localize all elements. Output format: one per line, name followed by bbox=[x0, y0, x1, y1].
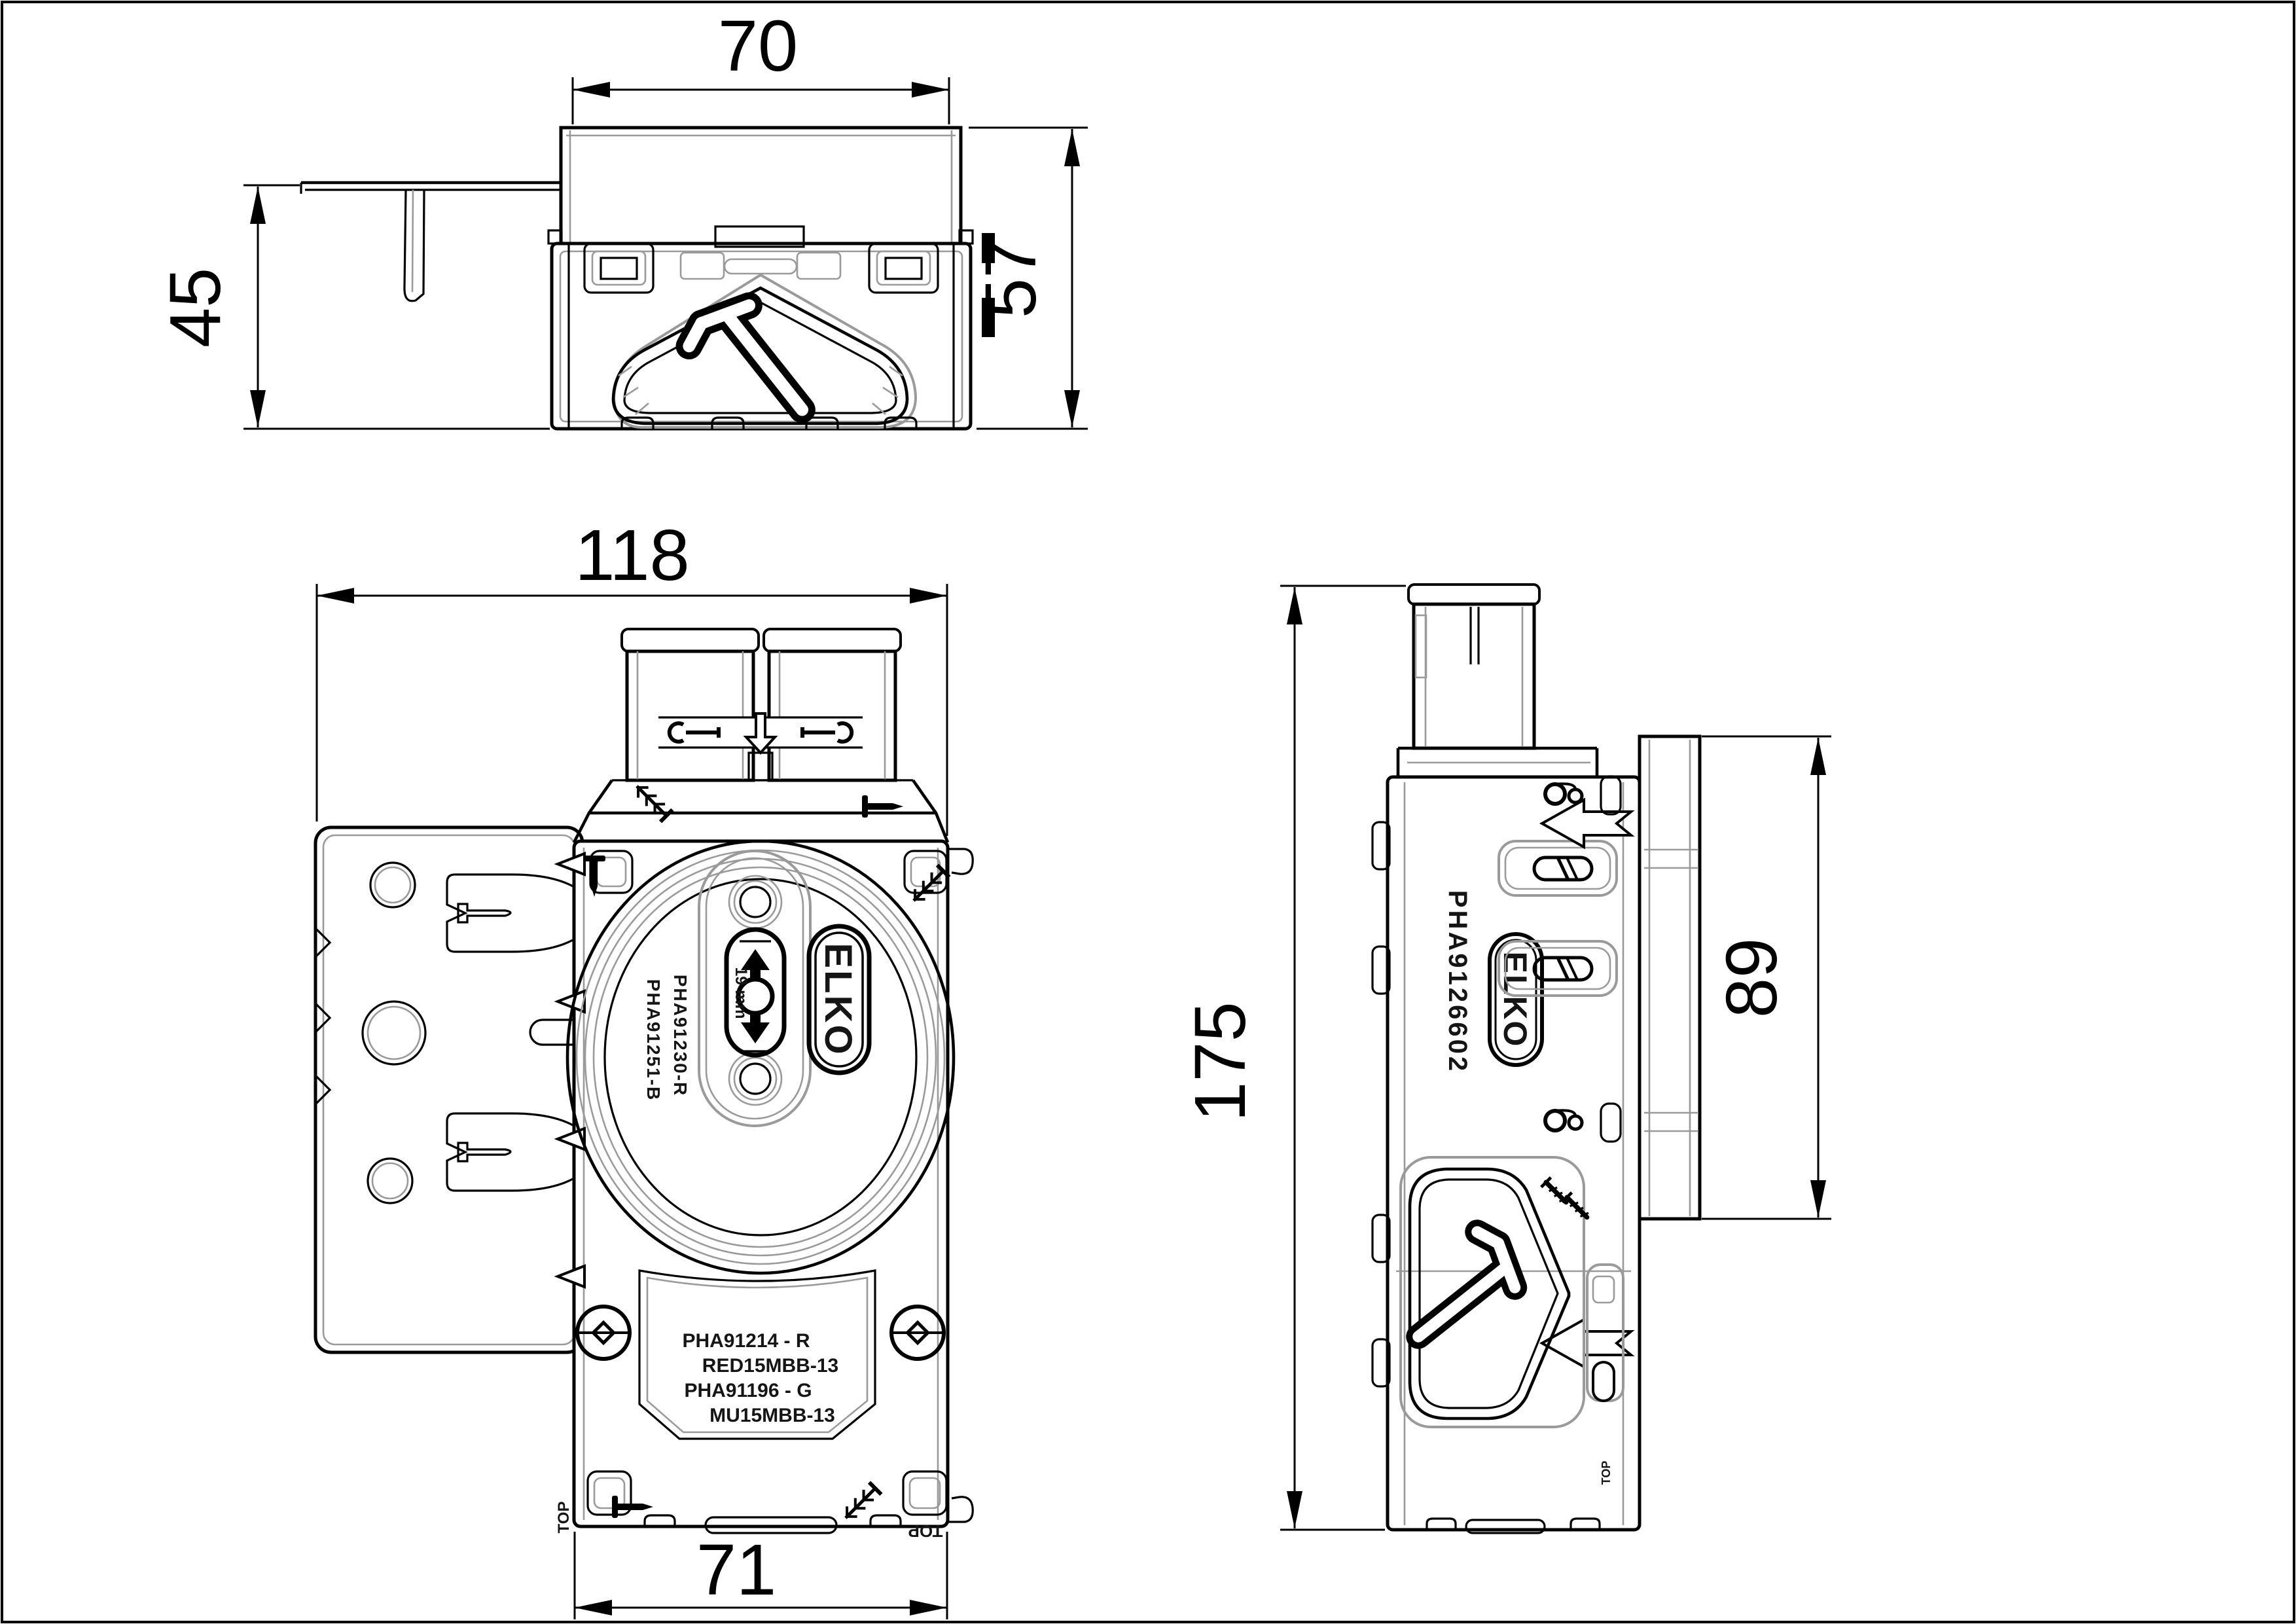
top-marker: TOP bbox=[1600, 1461, 1613, 1485]
screw-nail-icon bbox=[631, 780, 673, 822]
mounting-bracket bbox=[315, 827, 598, 1352]
dim-top-bracket-height: 45 bbox=[155, 185, 550, 429]
front-view: 19 mm ELKO PHA91230-R PHA91251-B PHA9121… bbox=[315, 515, 973, 1619]
gauge-label: 19 mm bbox=[732, 967, 750, 1019]
label-line: PHA91214 - R bbox=[682, 1330, 810, 1352]
box-body-side bbox=[1388, 777, 1640, 1530]
box-body-top bbox=[548, 226, 995, 429]
dimension-value: 70 bbox=[718, 6, 798, 86]
technical-drawing: 70 57 45 bbox=[0, 0, 2296, 1624]
label-line: RED15MBB-13 bbox=[702, 1355, 838, 1377]
rear-block bbox=[1640, 736, 1700, 1219]
label-line: PHA91196 - G bbox=[684, 1380, 812, 1401]
sheet-border bbox=[2, 2, 2294, 1622]
dimension-value: 175 bbox=[1180, 1001, 1261, 1122]
conduit-entry-side bbox=[1398, 585, 1597, 777]
dimension-value: 89 bbox=[1712, 938, 1792, 1018]
dimension-value: 118 bbox=[575, 515, 689, 596]
part-number: PHA9126602 bbox=[1443, 890, 1472, 1074]
dimension-value: 45 bbox=[155, 268, 236, 348]
logo-text: ELKO bbox=[1497, 952, 1534, 1048]
label-line: MU15MBB-13 bbox=[709, 1405, 835, 1426]
top-view: 70 57 45 bbox=[155, 6, 1088, 429]
top-marker: TOP bbox=[555, 1502, 573, 1534]
drawing-sheet: 70 57 45 bbox=[0, 0, 2296, 1624]
part-number: PHA91230-R bbox=[670, 975, 691, 1097]
top-marker: TOP bbox=[908, 1521, 943, 1541]
dim-top-width: 70 bbox=[573, 6, 949, 124]
dim-top-height: 57 bbox=[969, 128, 1088, 429]
conduit-entries bbox=[574, 629, 948, 842]
logo-text: ELKO bbox=[817, 943, 859, 1056]
part-number: PHA91251-B bbox=[643, 979, 664, 1102]
dimension-value: 71 bbox=[696, 1530, 776, 1610]
dim-side-height: 175 bbox=[1180, 586, 1406, 1530]
dim-front-body-width: 71 bbox=[575, 1530, 947, 1619]
flange-strip bbox=[301, 183, 561, 301]
side-view: PHA9126602 ELKO bbox=[1180, 585, 1831, 1533]
dim-side-depth: 89 bbox=[1702, 736, 1831, 1219]
dimension-value: 57 bbox=[971, 238, 1051, 318]
